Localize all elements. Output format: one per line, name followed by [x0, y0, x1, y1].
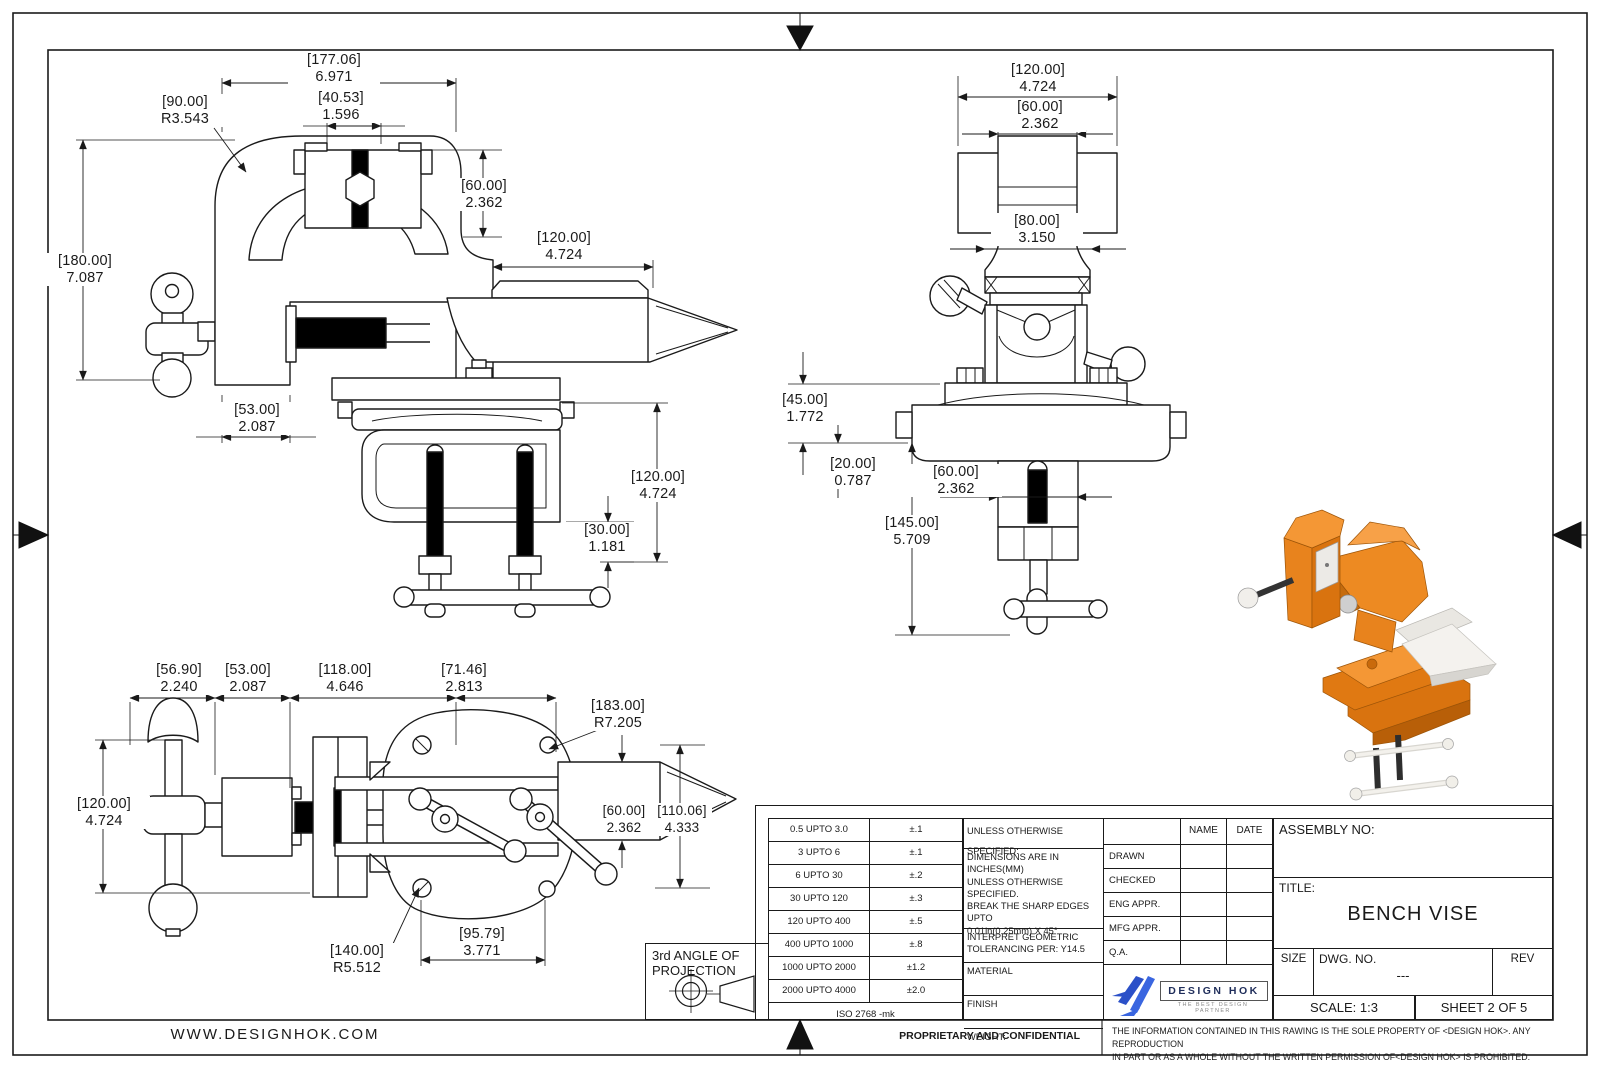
rev-label: REV: [1493, 949, 1552, 965]
dim-front-5: [60.00]2.362: [910, 464, 1002, 497]
dim-top-5: [120.00]4.724: [58, 796, 150, 829]
projection-box: 3rd ANGLE OF PROJECTION: [645, 943, 769, 1020]
logo-wordmark: DESIGN HOK: [1160, 981, 1268, 1001]
dim-side-1: [90.00]R3.543: [139, 94, 231, 127]
dim-top-9: [140.00]R5.512: [311, 943, 403, 976]
scale-value: SCALE: 1:3: [1274, 996, 1414, 1019]
notes-header: UNLESS OTHERWISE SPECIFIED:: [964, 819, 1103, 849]
projection-text: 3rd ANGLE OF PROJECTION: [652, 948, 739, 978]
dim-front-3: [45.00]1.772: [759, 392, 851, 425]
website-text: WWW.DESIGNHOK.COM: [140, 1026, 410, 1043]
dim-side-5: [180.00]7.087: [39, 253, 131, 286]
approval-row-eng: ENG APPR.: [1104, 892, 1272, 916]
approvals-table: NAME DATE DRAWN CHECKED ENG APPR. MFG AP…: [1103, 818, 1273, 1020]
dim-front-1: [60.00]2.362: [994, 99, 1086, 132]
notes-geometric: INTERPRET GEOMETRIC TOLERANCING PER: Y14…: [964, 929, 1103, 963]
tolerance-row: 120 UPTO 400±.5: [769, 911, 962, 934]
disclaimer-text: THE INFORMATION CONTAINED IN THIS RAWING…: [1112, 1025, 1542, 1064]
dim-side-6: [53.00]2.087: [211, 402, 303, 435]
notes-body: DIMENSIONS ARE IN INCHES(MM) UNLESS OTHE…: [964, 849, 1103, 929]
name-header: NAME: [1181, 819, 1227, 844]
notes-finish: FINISH: [964, 996, 1103, 1029]
approvals-header: NAME DATE: [1104, 819, 1272, 844]
dim-top-6: [60.00]2.362: [596, 803, 652, 836]
dim-front-6: [145.00]5.709: [866, 515, 958, 548]
dwg-no-value: ---: [1314, 968, 1492, 983]
iso-render: [1238, 510, 1496, 800]
assembly-no-label: ASSEMBLY NO:: [1274, 819, 1552, 837]
dim-side-8: [30.00]1.181: [563, 522, 651, 555]
dim-top-3: [71.46]2.813: [418, 662, 510, 695]
tolerance-row: 0.5 UPTO 3.0±.1: [769, 819, 962, 842]
tolerance-row: 3 UPTO 6±.1: [769, 842, 962, 865]
dim-side-0: [177.06]6.971: [288, 52, 380, 85]
title-label: TITLE:: [1274, 878, 1552, 895]
dim-top-7: [110.06]4.333: [652, 803, 712, 836]
approval-row-drawn: DRAWN: [1104, 844, 1272, 868]
rev-box: REV: [1492, 948, 1553, 996]
notes-material: MATERIAL: [964, 963, 1103, 996]
dim-top-2: [118.00]4.646: [299, 662, 391, 695]
dim-side-2: [40.53]1.596: [295, 90, 387, 123]
dim-front-2: [80.00]3.150: [991, 213, 1083, 246]
design-hok-logo-icon: [1110, 970, 1156, 1022]
tolerance-row: 1000 UPTO 2000±1.2: [769, 957, 962, 980]
dim-side-4: [120.00]4.724: [518, 230, 610, 263]
dim-side-7: [120.00]4.724: [612, 469, 704, 502]
title-box: TITLE: BENCH VISE: [1273, 877, 1553, 949]
notes-column: UNLESS OTHERWISE SPECIFIED: DIMENSIONS A…: [963, 818, 1104, 1020]
tolerance-row: 30 UPTO 120±.3: [769, 888, 962, 911]
tolerance-standard: ISO 2768 -mk: [769, 1003, 962, 1028]
tolerance-table: 0.5 UPTO 3.0±.1 3 UPTO 6±.1 6 UPTO 30±.2…: [768, 818, 963, 1020]
assembly-no-box: ASSEMBLY NO:: [1273, 818, 1553, 878]
proprietary-text: PROPRIETARY AND CONFIDENTIAL: [770, 1030, 1090, 1042]
approval-row-mfg: MFG APPR.: [1104, 916, 1272, 940]
dim-top-4: [183.00]R7.205: [572, 698, 664, 731]
dwg-no-box: DWG. NO. ---: [1313, 948, 1493, 996]
tolerance-row: 2000 UPTO 4000±2.0: [769, 980, 962, 1003]
size-label: SIZE: [1274, 949, 1313, 965]
tolerance-row: 400 UPTO 1000±.8: [769, 934, 962, 957]
dim-front-0: [120.00]4.724: [992, 62, 1084, 95]
tolerance-row: 6 UPTO 30±.2: [769, 865, 962, 888]
front-view-drawing: [896, 136, 1186, 634]
dim-top-8: [95.79]3.771: [436, 926, 528, 959]
size-box: SIZE: [1273, 948, 1314, 996]
logo-area: DESIGN HOK THE BEST DESIGN PARTNER: [1104, 964, 1272, 1026]
dwg-no-label: DWG. NO.: [1314, 949, 1492, 966]
dim-top-1: [53.00]2.087: [202, 662, 294, 695]
date-header: DATE: [1227, 819, 1272, 844]
dim-side-3: [60.00]2.362: [438, 178, 530, 211]
sheet-box: SHEET 2 OF 5: [1415, 995, 1553, 1020]
drawing-title: BENCH VISE: [1274, 903, 1552, 926]
logo-tagline: THE BEST DESIGN PARTNER: [1160, 1002, 1266, 1014]
dim-front-4: [20.00]0.787: [807, 456, 899, 489]
drawing-sheet: [177.06]6.971 [90.00]R3.543 [40.53]1.596…: [0, 0, 1600, 1065]
sheet-value: SHEET 2 OF 5: [1416, 996, 1552, 1019]
approval-row-checked: CHECKED: [1104, 868, 1272, 892]
scale-box: SCALE: 1:3: [1273, 995, 1415, 1020]
approval-row-qa: Q.A.: [1104, 940, 1272, 964]
